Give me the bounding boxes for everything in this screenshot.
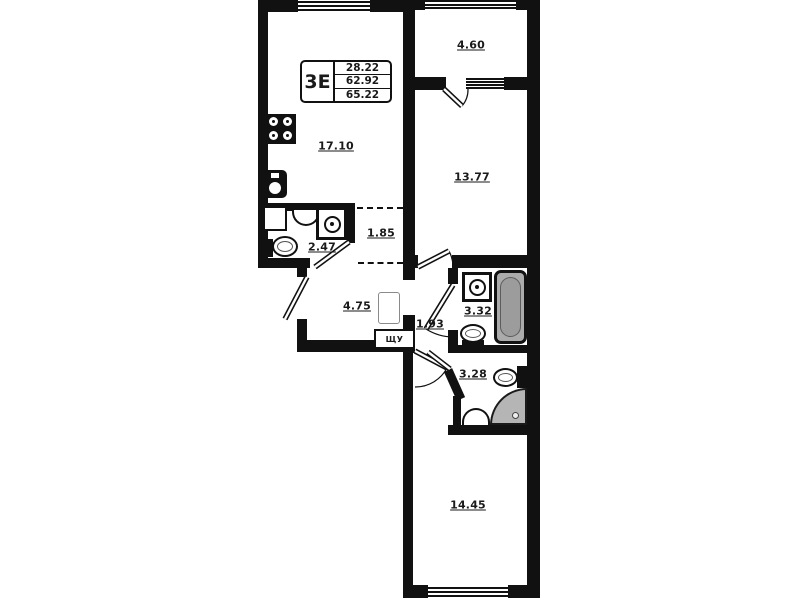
wall xyxy=(258,0,298,12)
vent-shaft xyxy=(263,206,287,231)
toilet-icon xyxy=(460,324,486,343)
wall xyxy=(403,268,415,280)
door-swing-arc xyxy=(462,89,468,106)
wall xyxy=(415,77,446,90)
wall xyxy=(347,203,355,243)
toilet-icon xyxy=(493,368,518,387)
wall xyxy=(415,0,425,10)
window xyxy=(428,585,508,598)
room-area-label: 3.32 xyxy=(464,305,492,318)
door-leaf xyxy=(428,352,450,369)
wall xyxy=(403,585,428,598)
room-area-label: 2.47 xyxy=(308,241,336,254)
room-area-label: 4.60 xyxy=(457,39,485,52)
corner-shower-icon xyxy=(490,388,527,425)
open-door-leaf xyxy=(378,292,400,324)
bathtub-icon xyxy=(494,270,527,344)
door-swing-arc xyxy=(415,368,447,387)
wall xyxy=(297,268,307,277)
wall xyxy=(448,268,458,284)
door-leaf xyxy=(418,251,449,267)
washing-machine-icon xyxy=(316,207,347,240)
electrical-panel: ЩУ xyxy=(374,329,415,349)
room-area-label: 13.77 xyxy=(454,171,490,184)
wall xyxy=(508,585,540,598)
room-area-label: 1.93 xyxy=(416,318,444,331)
door-leaf xyxy=(285,277,307,319)
toilet-tank xyxy=(517,366,527,388)
room-area-label: 14.45 xyxy=(450,499,486,512)
door-leaf xyxy=(444,89,462,106)
room-area-label: 3.28 xyxy=(459,368,487,381)
window xyxy=(466,77,504,90)
wall xyxy=(403,340,413,598)
wall xyxy=(452,255,540,268)
apartment-type-label: 3Е xyxy=(302,62,333,101)
room-area-label: 1.85 xyxy=(367,227,395,240)
wall xyxy=(258,258,310,268)
wall xyxy=(403,255,418,268)
wall xyxy=(448,425,540,435)
room-area-label: 17.10 xyxy=(318,140,354,153)
electrical-panel-label: ЩУ xyxy=(386,335,404,344)
title-block: 3Е 28.22 62.92 65.22 xyxy=(300,60,392,103)
floor-plan: 3Е 28.22 62.92 65.22 xyxy=(0,0,799,600)
area-value: 62.92 xyxy=(335,75,390,88)
window xyxy=(425,0,516,10)
wall xyxy=(504,77,527,90)
living-area-value: 28.22 xyxy=(335,62,390,75)
washing-machine-icon xyxy=(462,272,492,302)
window xyxy=(298,0,370,12)
door-leaf xyxy=(415,351,447,368)
kitchen-sink-icon xyxy=(263,170,287,198)
total-area-value: 65.22 xyxy=(335,89,390,101)
wardrobe-dashed-line xyxy=(357,207,403,209)
room-area-label: 4.75 xyxy=(343,300,371,313)
wardrobe-dashed-line xyxy=(358,262,403,264)
wall xyxy=(403,0,415,268)
toilet-icon xyxy=(272,236,298,257)
stove-icon xyxy=(266,114,296,144)
wash-basin-icon xyxy=(462,408,490,425)
wall xyxy=(527,0,540,598)
